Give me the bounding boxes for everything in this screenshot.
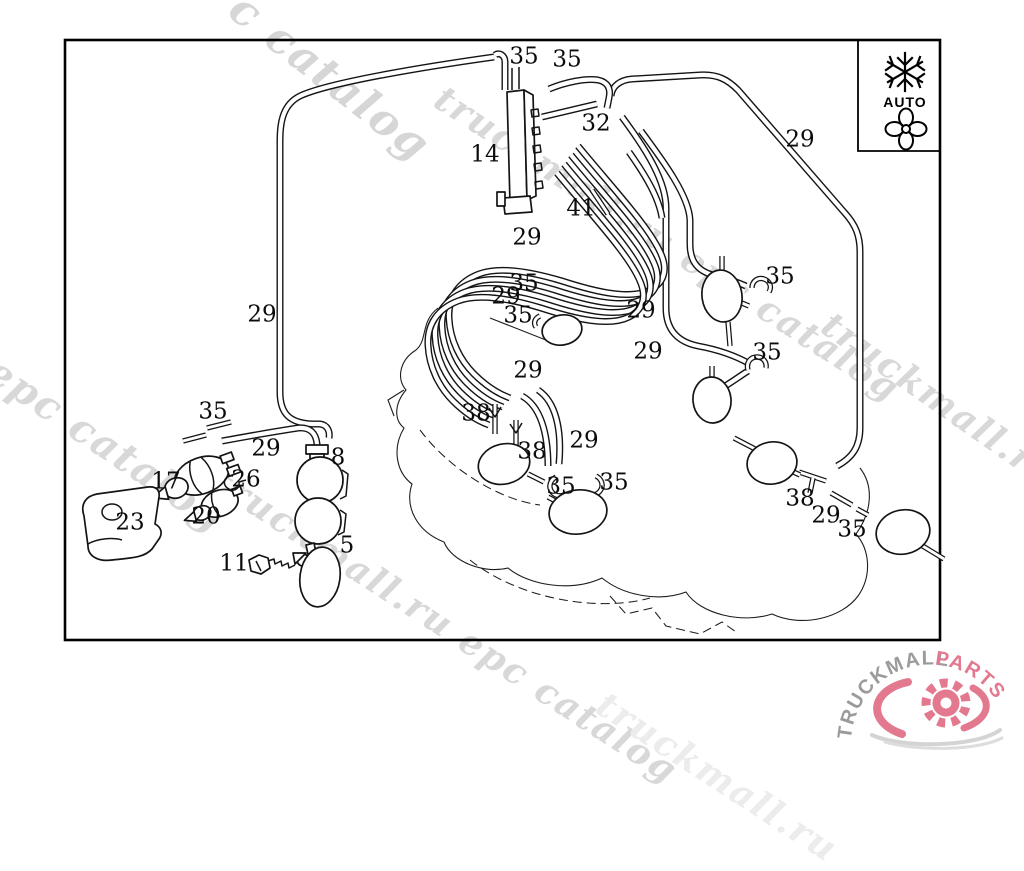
left-parts [83, 445, 348, 609]
vacuum-hoses [222, 54, 860, 466]
fan-icon [886, 109, 927, 150]
diagram-canvas: AUTO [0, 0, 1024, 750]
valve-stack-5 [295, 457, 348, 609]
gear-icon [922, 679, 969, 726]
snowflake-icon [886, 53, 924, 91]
truckmall-logo: TRUCKMALL PARTS [834, 647, 1010, 748]
logo-swoosh-pink [877, 682, 908, 734]
diagram-frame [65, 40, 940, 640]
climate-panel: AUTO [858, 41, 939, 151]
parts-diagram-page: c catalogtruckmall.ru epc catalogtruckma… [0, 0, 1024, 750]
hose-bundle [428, 146, 664, 425]
bracket-23 [83, 487, 161, 561]
